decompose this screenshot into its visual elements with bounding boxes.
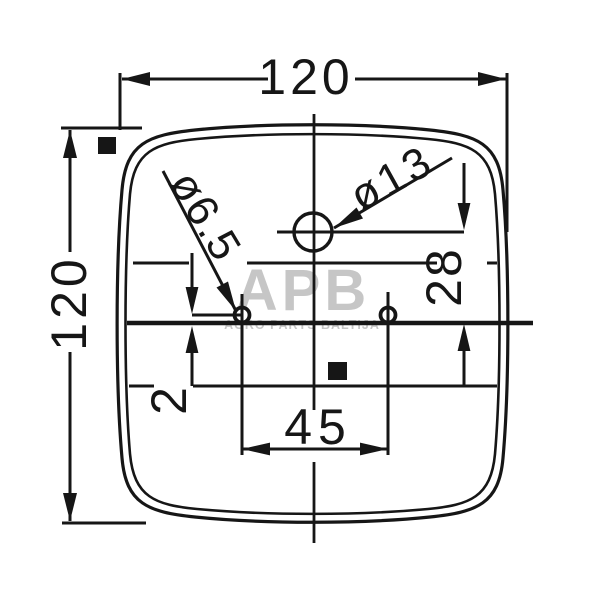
arrow-28-top — [458, 203, 471, 230]
marker-square-center — [328, 362, 347, 380]
technical-drawing: APB AGRO PARTS BALTIJA — [0, 0, 600, 600]
arrow-2-bottom — [186, 326, 199, 353]
dia-65-label: ø6.5 — [160, 163, 251, 271]
arrow-width-right — [478, 72, 506, 86]
arrow-45-right — [360, 443, 388, 456]
arrow-45-left — [242, 443, 270, 456]
watermark-logo: APB — [236, 258, 370, 323]
dim-2-label: 2 — [141, 387, 197, 415]
arrow-28-bottom — [458, 324, 471, 351]
arrow-height-top — [63, 130, 77, 158]
marker-square-top-left — [98, 137, 116, 154]
dim-28-label: 28 — [416, 247, 472, 307]
dim-width-label: 120 — [258, 49, 353, 105]
drawing-canvas: APB AGRO PARTS BALTIJA — [0, 0, 600, 600]
dim-height-label: 120 — [41, 255, 97, 350]
arrow-width-left — [122, 72, 150, 86]
dim-45-label: 45 — [284, 399, 352, 455]
arrow-2-top — [186, 287, 199, 314]
dimension-labels: 120 120 45 28 2 ø13 ø6.5 — [41, 49, 472, 455]
arrow-height-bottom — [63, 493, 77, 521]
arrow-leader-dia65 — [217, 282, 237, 312]
